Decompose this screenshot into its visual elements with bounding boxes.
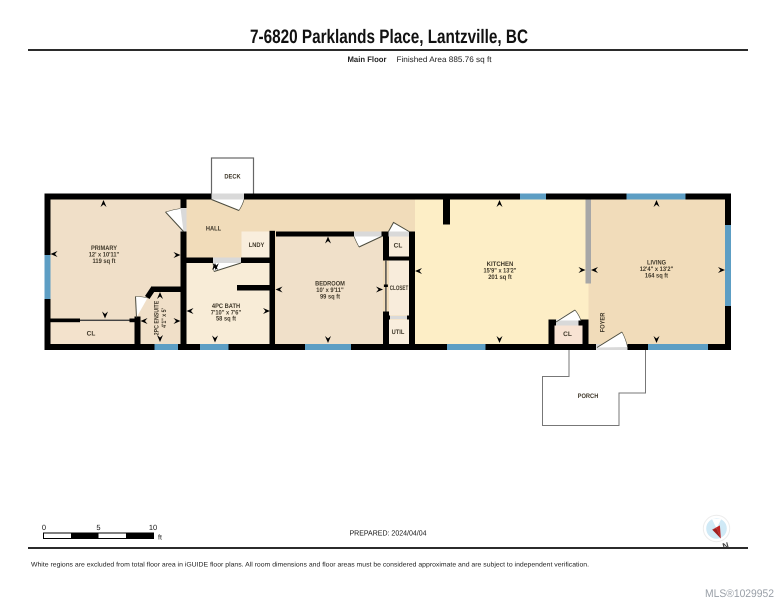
svg-text:LNDY: LNDY xyxy=(249,242,265,249)
svg-text:58 sq ft: 58 sq ft xyxy=(216,316,237,323)
svg-text:CLOSET: CLOSET xyxy=(390,285,409,292)
svg-text:ft: ft xyxy=(158,534,162,542)
svg-text:164 sq ft: 164 sq ft xyxy=(645,272,669,279)
svg-text:5: 5 xyxy=(96,523,100,532)
svg-text:UTIL: UTIL xyxy=(392,329,405,336)
svg-text:CL: CL xyxy=(394,243,403,250)
svg-text:DECK: DECK xyxy=(224,174,240,181)
svg-text:PREPARED: 2024/04/04: PREPARED: 2024/04/04 xyxy=(350,529,427,538)
svg-text:FOYER: FOYER xyxy=(600,312,607,332)
svg-text:0: 0 xyxy=(42,523,46,532)
svg-text:MLS®1029952: MLS®1029952 xyxy=(705,588,774,600)
svg-text:10: 10 xyxy=(149,523,157,532)
svg-text:PORCH: PORCH xyxy=(578,393,599,400)
svg-text:7-6820 Parklands Place, Lantzv: 7-6820 Parklands Place, Lantzville, BC xyxy=(250,26,528,48)
svg-text:Finished Area 885.76 sq ft: Finished Area 885.76 sq ft xyxy=(397,55,493,64)
svg-text:2PC ENSUITE: 2PC ENSUITE xyxy=(154,300,161,335)
svg-text:201 sq ft: 201 sq ft xyxy=(488,274,512,281)
svg-text:4'1" x 5': 4'1" x 5' xyxy=(161,308,168,328)
svg-text:Main Floor: Main Floor xyxy=(348,55,387,64)
svg-text:White regions are excluded fro: White regions are excluded from total fl… xyxy=(31,562,589,569)
svg-text:CL: CL xyxy=(87,331,96,338)
svg-text:CL: CL xyxy=(563,331,572,338)
svg-text:119 sq ft: 119 sq ft xyxy=(93,258,117,265)
svg-text:HALL: HALL xyxy=(206,226,221,233)
svg-text:99 sq ft: 99 sq ft xyxy=(320,294,341,301)
